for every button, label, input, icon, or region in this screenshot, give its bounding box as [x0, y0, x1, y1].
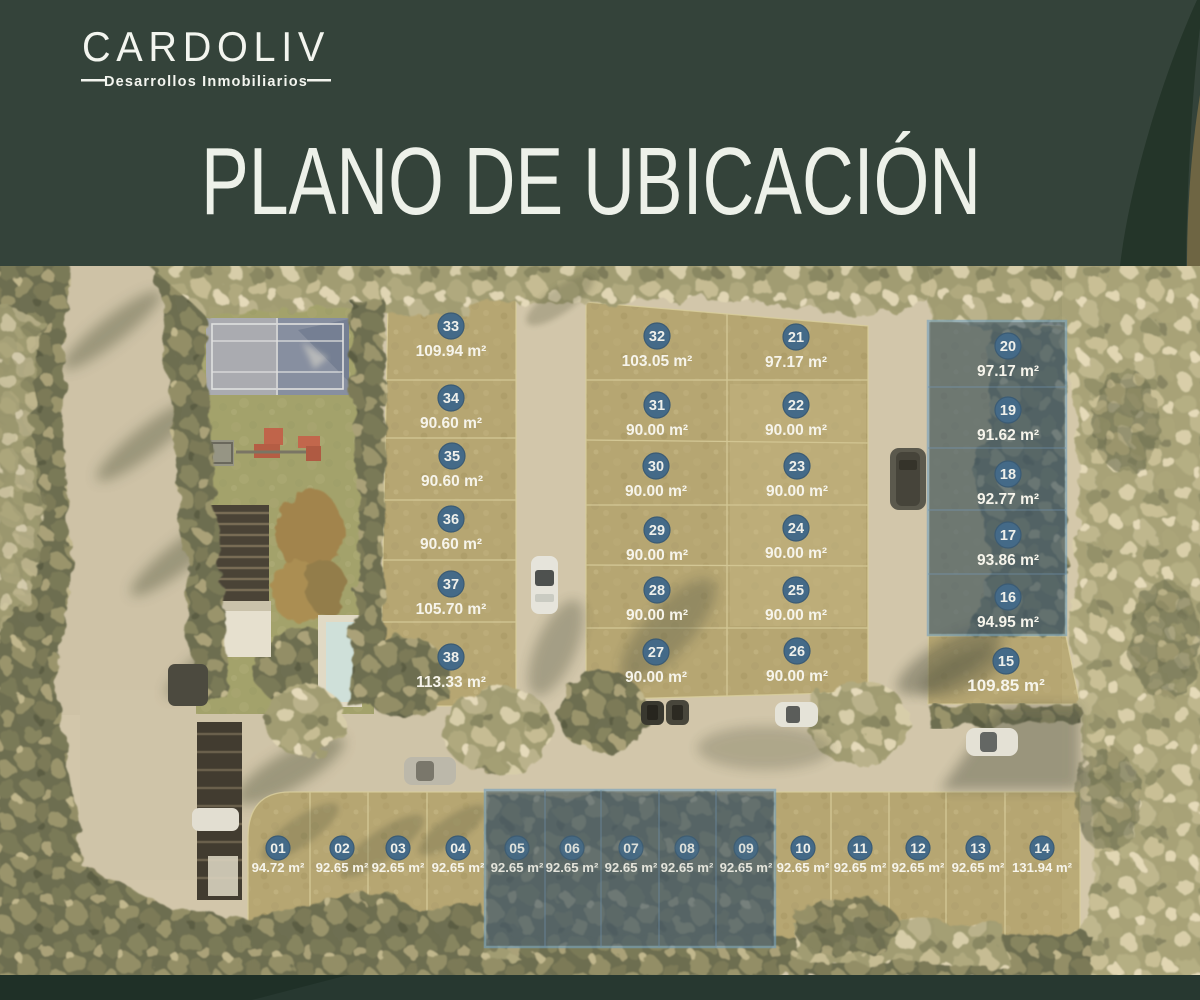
svg-text:Desarrollos Inmobiliarios: Desarrollos Inmobiliarios [104, 74, 308, 90]
svg-text:CARDOLIV: CARDOLIV [82, 23, 330, 70]
svg-text:PLANO DE UBICACIÓN: PLANO DE UBICACIÓN [201, 128, 981, 235]
